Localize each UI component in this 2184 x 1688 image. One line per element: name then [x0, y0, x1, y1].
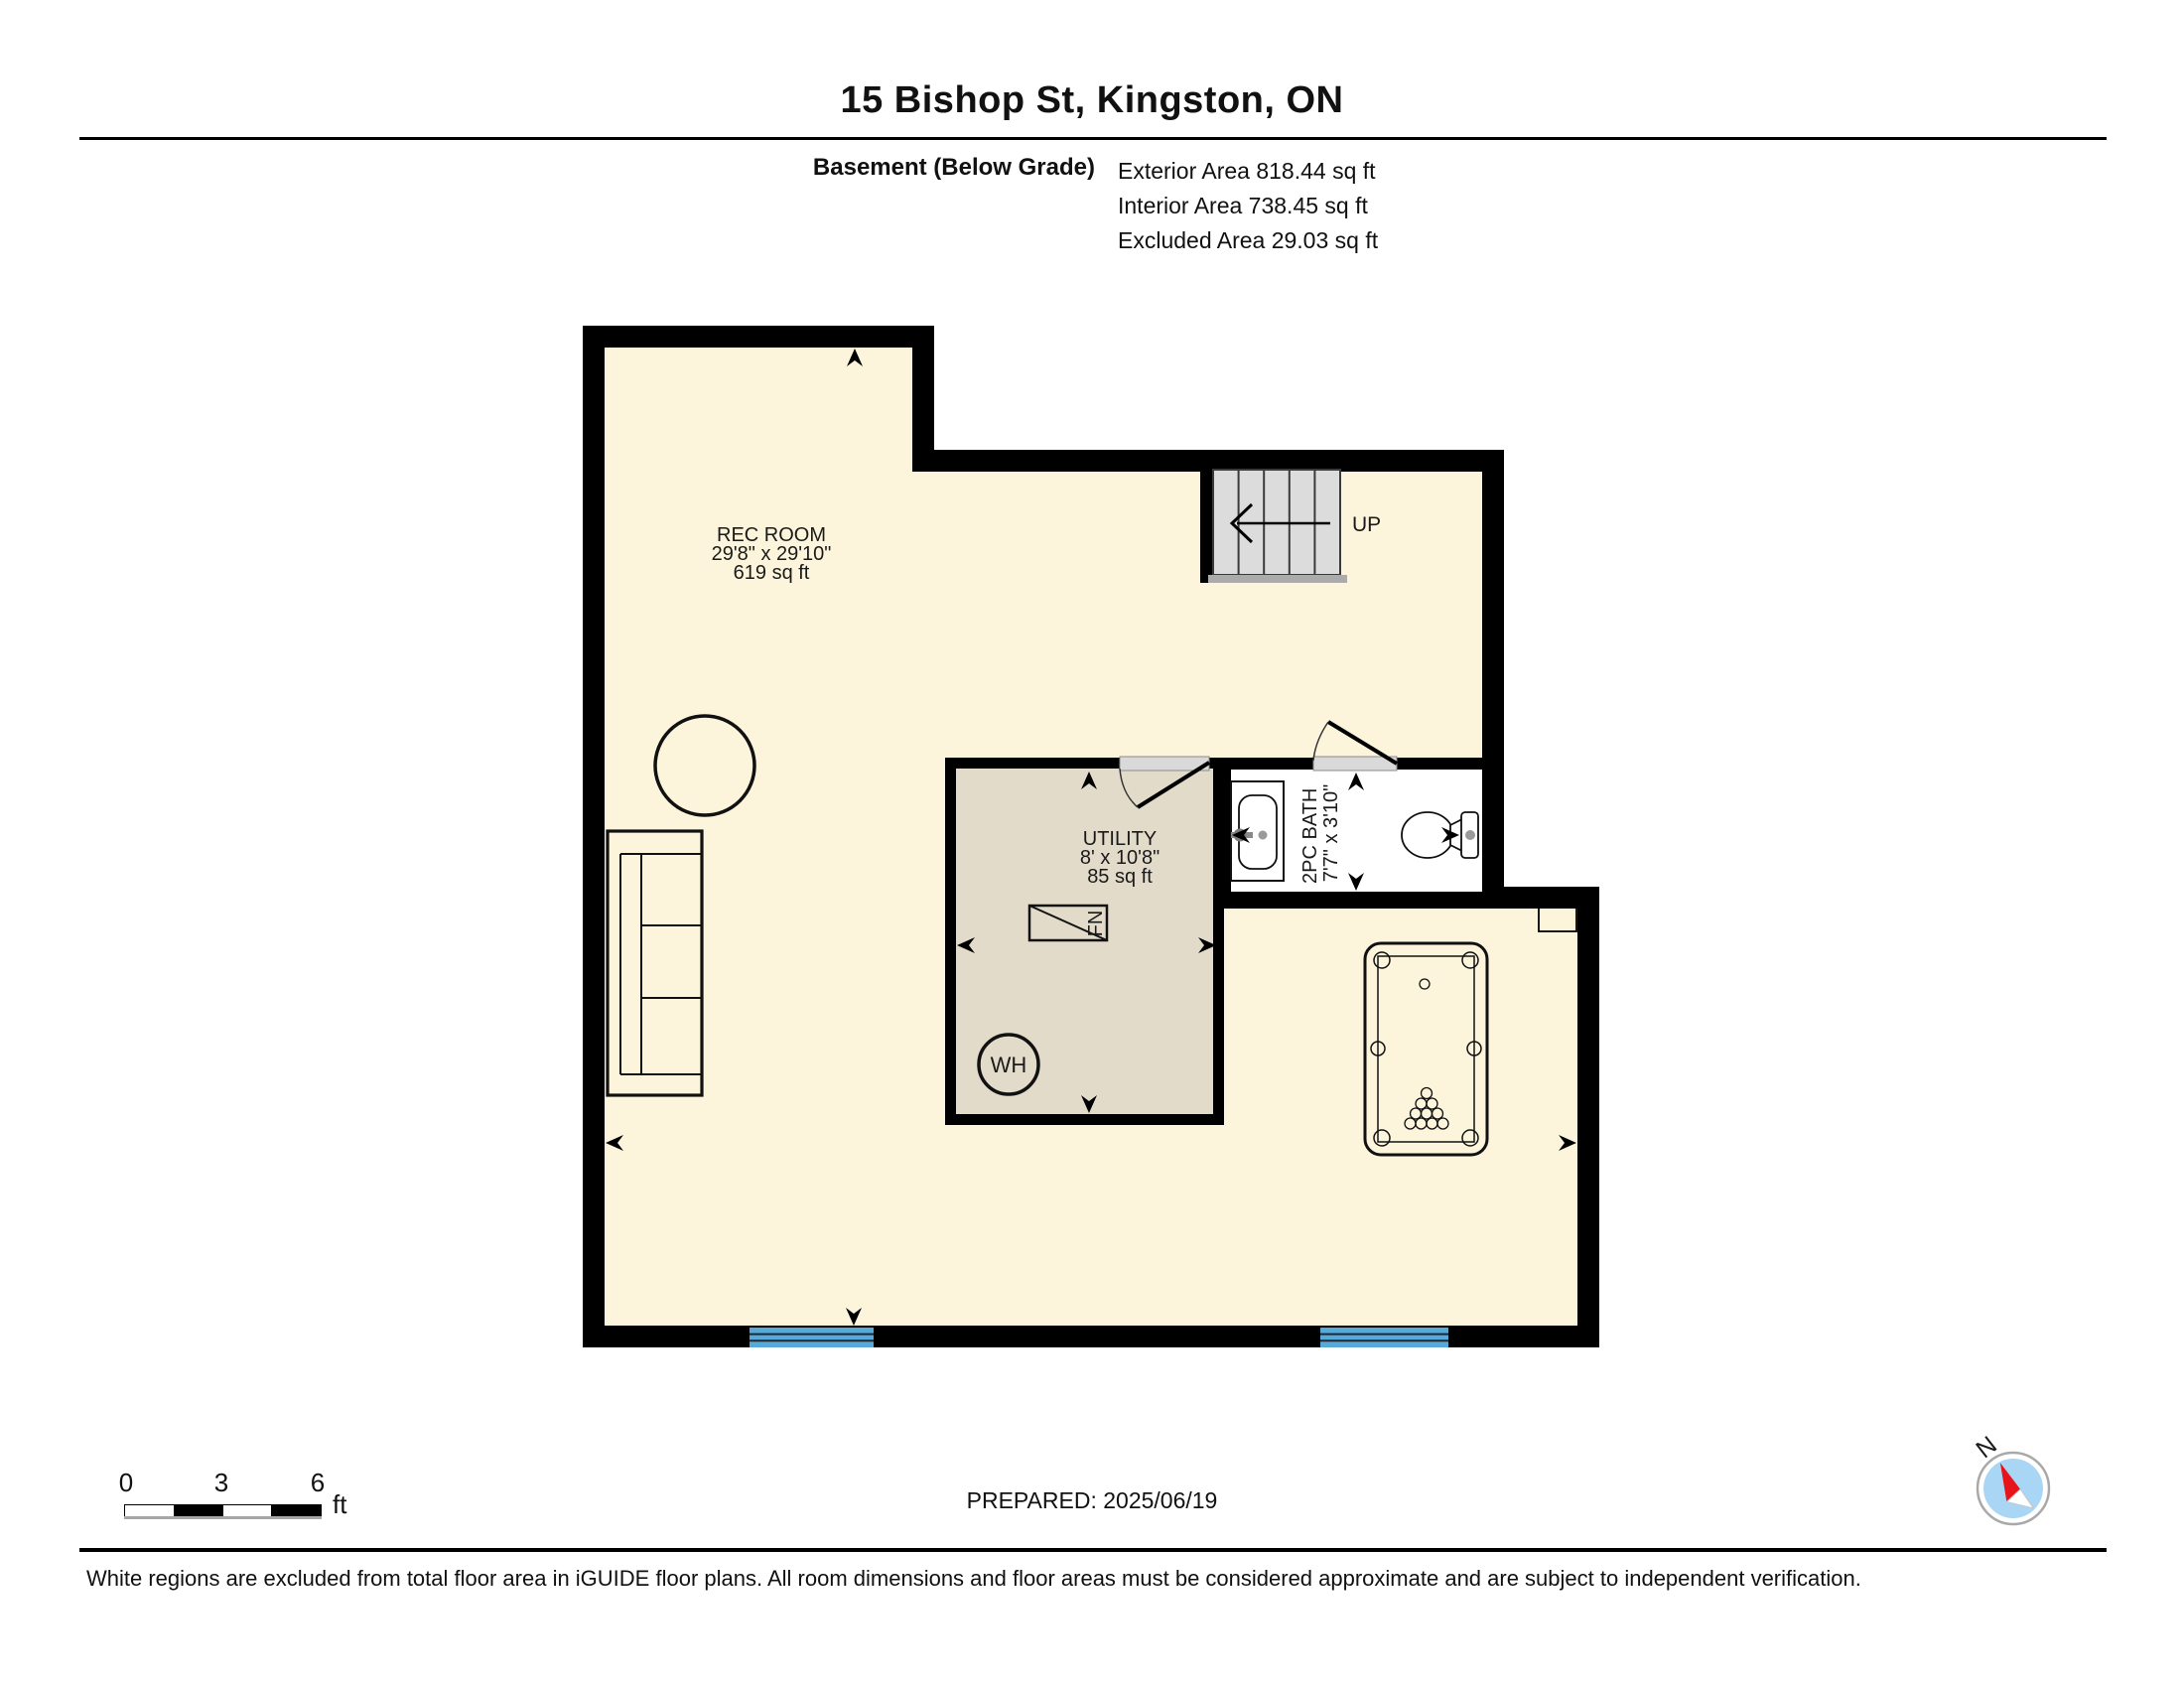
furnace-label: FN	[1085, 911, 1107, 937]
water-heater-label: WH	[991, 1053, 1027, 1077]
rec-room-area: 619 sq ft	[734, 562, 810, 584]
footer-disclaimer: White regions are excluded from total fl…	[86, 1566, 1861, 1592]
exterior-area-line: Exterior Area 818.44 sq ft	[1118, 154, 1378, 189]
compass: N	[1951, 1415, 2080, 1539]
footer-divider	[79, 1548, 2107, 1552]
page-title: 15 Bishop St, Kingston, ON	[0, 79, 2184, 122]
stairs-up-label: UP	[1352, 513, 1381, 536]
bath-bottom-wall	[1221, 892, 1482, 909]
floor-name-label: Basement (Below Grade)	[813, 154, 1095, 182]
area-summary: Exterior Area 818.44 sq ft Interior Area…	[1118, 154, 1378, 258]
stair-side-wall	[1200, 472, 1213, 583]
utility-area: 85 sq ft	[1087, 866, 1153, 888]
window-left	[750, 1328, 874, 1347]
interior-area-line: Interior Area 738.45 sq ft	[1118, 189, 1378, 223]
excluded-area-line: Excluded Area 29.03 sq ft	[1118, 223, 1378, 258]
header-divider	[79, 137, 2107, 140]
stair-sill	[1208, 575, 1347, 583]
bath-label: 2PC BATH 7'7" x 3'10"	[1299, 782, 1342, 884]
bath-name: 2PC BATH	[1299, 788, 1321, 884]
prepared-date: PREPARED: 2025/06/19	[0, 1487, 2184, 1514]
utility-label: UTILITY 8' x 10'8" 85 sq ft	[1080, 828, 1160, 888]
bath-dimensions: 7'7" x 3'10"	[1320, 784, 1342, 883]
window-right	[1320, 1328, 1448, 1347]
bathroom-sink	[1231, 781, 1284, 881]
floor-plan: UP	[556, 298, 1648, 1390]
toilet	[1402, 812, 1478, 858]
